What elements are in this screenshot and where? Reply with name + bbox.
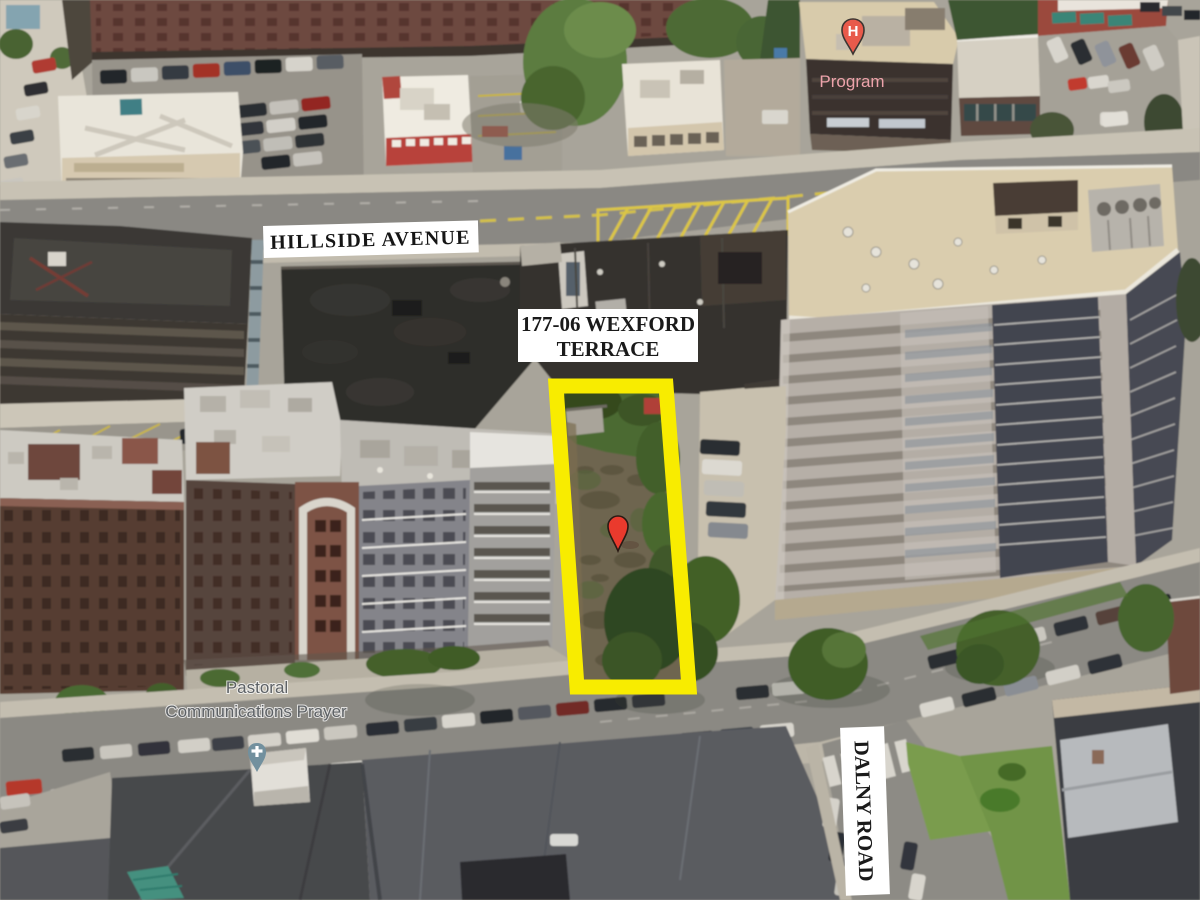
svg-text:177-06 WEXFORD: 177-06 WEXFORD	[521, 312, 695, 336]
svg-text:DALNY ROAD: DALNY ROAD	[850, 740, 879, 882]
svg-text:Communications Prayer: Communications Prayer	[165, 702, 347, 721]
svg-text:TERRACE: TERRACE	[557, 337, 660, 361]
svg-text:H: H	[848, 23, 859, 40]
svg-text:Program: Program	[819, 72, 884, 91]
svg-text:Pastoral: Pastoral	[226, 678, 288, 697]
